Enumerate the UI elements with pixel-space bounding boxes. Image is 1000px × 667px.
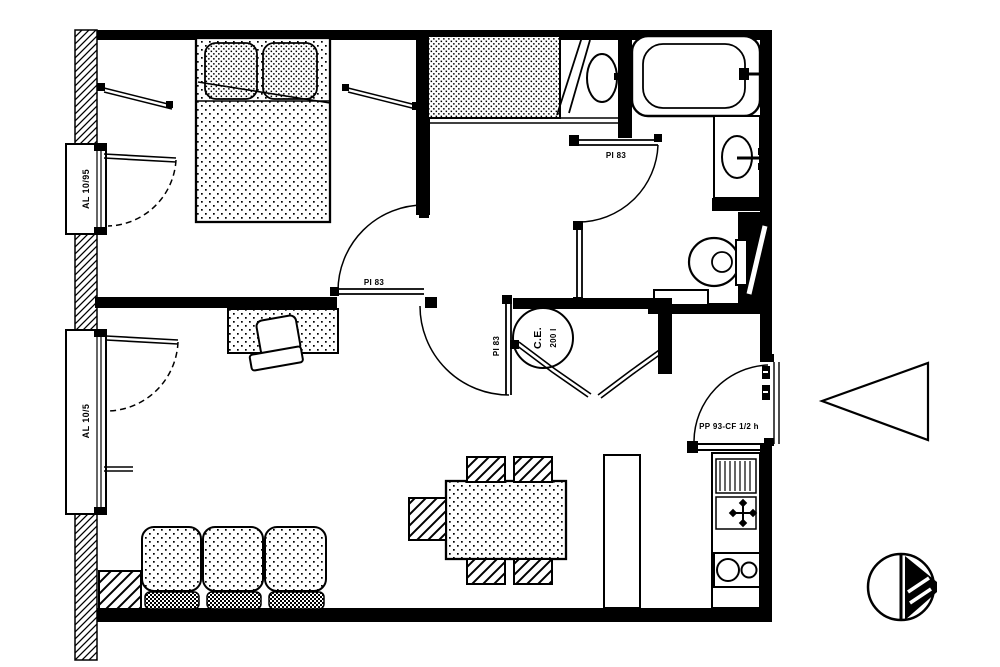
hinge-mark: [166, 101, 173, 108]
left-wall-segment-middle: [75, 232, 97, 330]
drainer-ribs: [720, 461, 750, 491]
cooktop-burner-small: [742, 563, 757, 578]
window-upper: AL 10/95: [66, 143, 176, 235]
bed-cover-fold-line: [557, 37, 590, 115]
dining-table: [446, 481, 566, 559]
closet-top-wall: [513, 298, 665, 309]
kitchen: [604, 453, 770, 608]
threshold-marks: [762, 366, 770, 400]
hinge-mark: [660, 342, 669, 351]
sofa-back-cushion: [207, 592, 261, 609]
bathroom-door: PI 83: [569, 134, 662, 222]
hinge-mark: [419, 209, 429, 218]
dining-chair: [467, 559, 505, 584]
tap-mark: [758, 163, 767, 170]
living-door-label: PI 83: [492, 336, 501, 356]
sofa-seat: [265, 527, 326, 591]
bedroom: [97, 38, 420, 222]
closet-right-wall: [658, 298, 672, 374]
hinge-mark: [569, 135, 579, 146]
hinge-mark: [654, 134, 662, 142]
window-jamb-mark: [94, 507, 107, 515]
toilet-bowl-inner: [712, 252, 732, 272]
north-arrow-icon: [868, 553, 937, 621]
sofa-seat: [142, 527, 201, 591]
closet-bifold-door-right: [598, 348, 665, 398]
window-lower-transom-tick: [104, 467, 133, 471]
right-wall-lower: [760, 444, 772, 622]
window-upper-swing-arc: [108, 160, 176, 226]
closet-door-right: [348, 88, 416, 109]
bedroom-door-label: PI 83: [364, 278, 384, 287]
pillow: [263, 43, 317, 99]
hinge-mark: [764, 438, 774, 446]
left-wall-segment-bottom: [75, 512, 97, 660]
window-upper-sash: [104, 154, 176, 162]
sofa-seat: [203, 527, 263, 591]
left-wall-segment-top: [75, 30, 97, 145]
floor-plan-drawing: AL 10/95 AL 10/5 PI 83: [0, 0, 1000, 667]
entrance-arrow-icon: [822, 363, 928, 440]
washbasin-oval: [587, 54, 617, 102]
hinge-mark: [342, 84, 349, 91]
bathtub-inner: [643, 44, 745, 108]
kitchen-peninsula: [604, 455, 640, 608]
bedroom-door-leaf: [338, 289, 424, 294]
dining-chair: [409, 498, 446, 540]
window-lower: AL 10/5: [66, 329, 178, 515]
window-lower-swing-arc: [108, 342, 178, 411]
tap-mark: [758, 148, 767, 155]
hinge-mark: [687, 441, 698, 453]
hall: PI 83 C.E. 200 l: [420, 295, 672, 398]
single-bed: [428, 36, 560, 118]
window-jamb-mark: [94, 227, 107, 235]
window-jamb-mark: [94, 329, 107, 337]
hinge-mark: [510, 340, 519, 349]
dining-chair: [467, 457, 505, 482]
alcove: [428, 36, 623, 123]
sofa-back-cushion: [269, 592, 324, 609]
threshold-lines: [774, 362, 779, 444]
water-heater-capacity-label: 200 l: [549, 328, 558, 347]
tap-mark: [760, 61, 769, 68]
wc-door-leaf: [577, 228, 582, 300]
dining-chair: [514, 559, 552, 584]
hinge-mark: [573, 221, 583, 230]
window-jamb-mark: [94, 143, 107, 151]
bedroom-door: PI 83: [330, 205, 424, 296]
water-heater-label: C.E.: [532, 327, 544, 349]
closet-door-left: [104, 88, 172, 109]
tap-mark: [760, 79, 769, 86]
entrance: PP 93-CF 1/2 h: [687, 354, 779, 453]
bathroom-partition-wall: [618, 30, 632, 138]
toilet-cistern: [736, 240, 747, 285]
bathtub-tap: [739, 68, 749, 80]
bathroom-south-wall: [712, 198, 772, 211]
window-upper-label: AL 10/95: [81, 169, 91, 209]
sofa-back-cushion: [145, 592, 199, 609]
hinge-mark: [502, 295, 512, 304]
partition-wall-pier: [425, 297, 437, 308]
dining-set: [409, 457, 566, 584]
north-triangle: [905, 556, 937, 620]
dining-chair: [514, 457, 552, 482]
floor-plan: AL 10/95 AL 10/5 PI 83: [0, 0, 1000, 667]
bathroom-door-label: PI 83: [606, 151, 626, 160]
hinge-mark: [764, 354, 774, 362]
side-table: [99, 571, 141, 609]
entrance-arrow-triangle: [822, 363, 928, 440]
bathroom-door-leaf: [578, 140, 658, 145]
cooktop-burner-large: [717, 559, 739, 581]
window-lower-sash: [106, 336, 178, 344]
hinge-mark: [97, 83, 105, 91]
entrance-door-label: PP 93-CF 1/2 h: [699, 422, 759, 431]
sofa: [142, 527, 326, 609]
bottom-wall: [95, 608, 772, 622]
window-lower-label: AL 10/5: [81, 404, 91, 439]
bathroom: [618, 30, 772, 211]
partition-wall-left: [95, 297, 337, 308]
